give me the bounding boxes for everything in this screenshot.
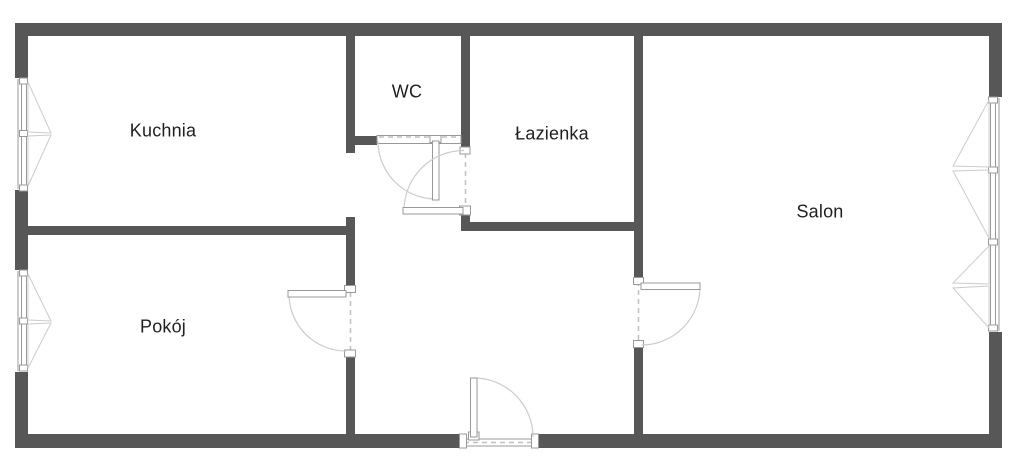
wall-kuchnia-pokoj: [28, 226, 346, 235]
wall-outer-top: [15, 23, 1002, 36]
wall-outer-right-lower: [989, 332, 1002, 448]
window-salon: [953, 97, 999, 331]
wall-hall-pokoj-upper: [346, 217, 355, 291]
room-label-pokoj: Pokój: [140, 317, 186, 338]
wall-wc-bottom: [346, 136, 377, 145]
floorplan: Kuchnia WC Łazienka Salon Pokój: [0, 0, 1024, 470]
wall-outer-left-upper: [15, 23, 28, 78]
wall-outer-left-middle: [15, 190, 28, 270]
room-label-lazienka: Łazienka: [515, 124, 589, 145]
wall-outer-left-lower: [15, 372, 28, 448]
room-label-wc: WC: [392, 82, 422, 103]
window-pokoj: [18, 270, 51, 371]
wall-outer-right-upper: [989, 23, 1002, 97]
door-pokoj: [288, 286, 356, 358]
room-label-kuchnia: Kuchnia: [130, 121, 196, 142]
door-entry: [460, 378, 539, 448]
wall-salon-hall-lower: [634, 343, 643, 434]
wall-hall-pokoj-lower: [346, 351, 355, 434]
room-label-salon: Salon: [796, 202, 843, 223]
door-salon: [634, 278, 701, 348]
wall-wc-lazienka: [461, 36, 470, 153]
wall-kuchnia-wc: [346, 36, 355, 153]
door-wc: [377, 136, 461, 201]
wall-outer-bottom-left: [15, 434, 462, 448]
wall-lazienka-salon: [634, 36, 643, 280]
wall-outer-bottom-right: [533, 434, 1002, 448]
walls: [15, 23, 1002, 448]
window-kuchnia: [18, 78, 51, 191]
floorplan-drawing: [0, 0, 1024, 470]
wall-lazienka-bottom: [461, 222, 643, 231]
